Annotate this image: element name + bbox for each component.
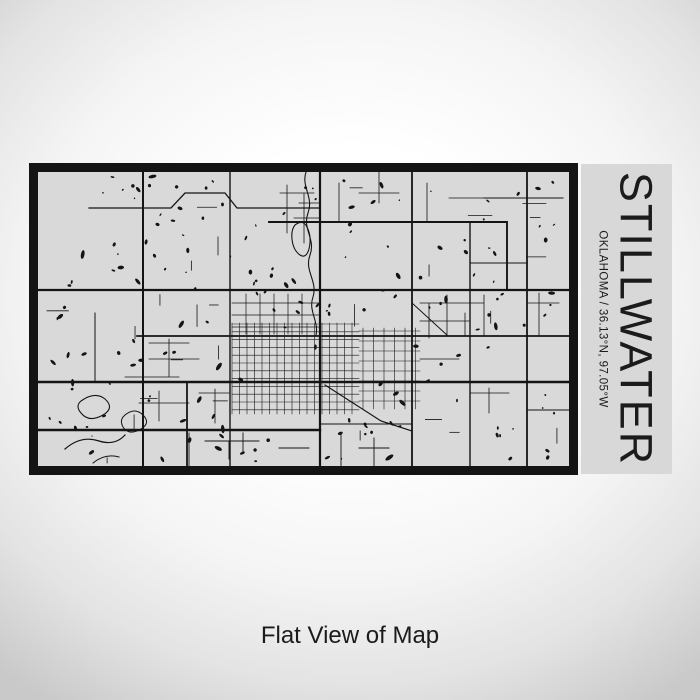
map-graphic (29, 163, 578, 475)
city-coordinates: OKLAHOMA / 36.13°N, 97.05°W (595, 172, 607, 466)
product-render-background: STILLWATER OKLAHOMA / 36.13°N, 97.05°W F… (0, 0, 700, 700)
label-rotated-block: STILLWATER OKLAHOMA / 36.13°N, 97.05°W (595, 172, 658, 466)
city-name: STILLWATER (613, 172, 658, 466)
map-background (29, 163, 578, 475)
map-svg (29, 163, 578, 475)
caption-text: Flat View of Map (0, 622, 700, 650)
label-panel: STILLWATER OKLAHOMA / 36.13°N, 97.05°W (581, 164, 672, 474)
